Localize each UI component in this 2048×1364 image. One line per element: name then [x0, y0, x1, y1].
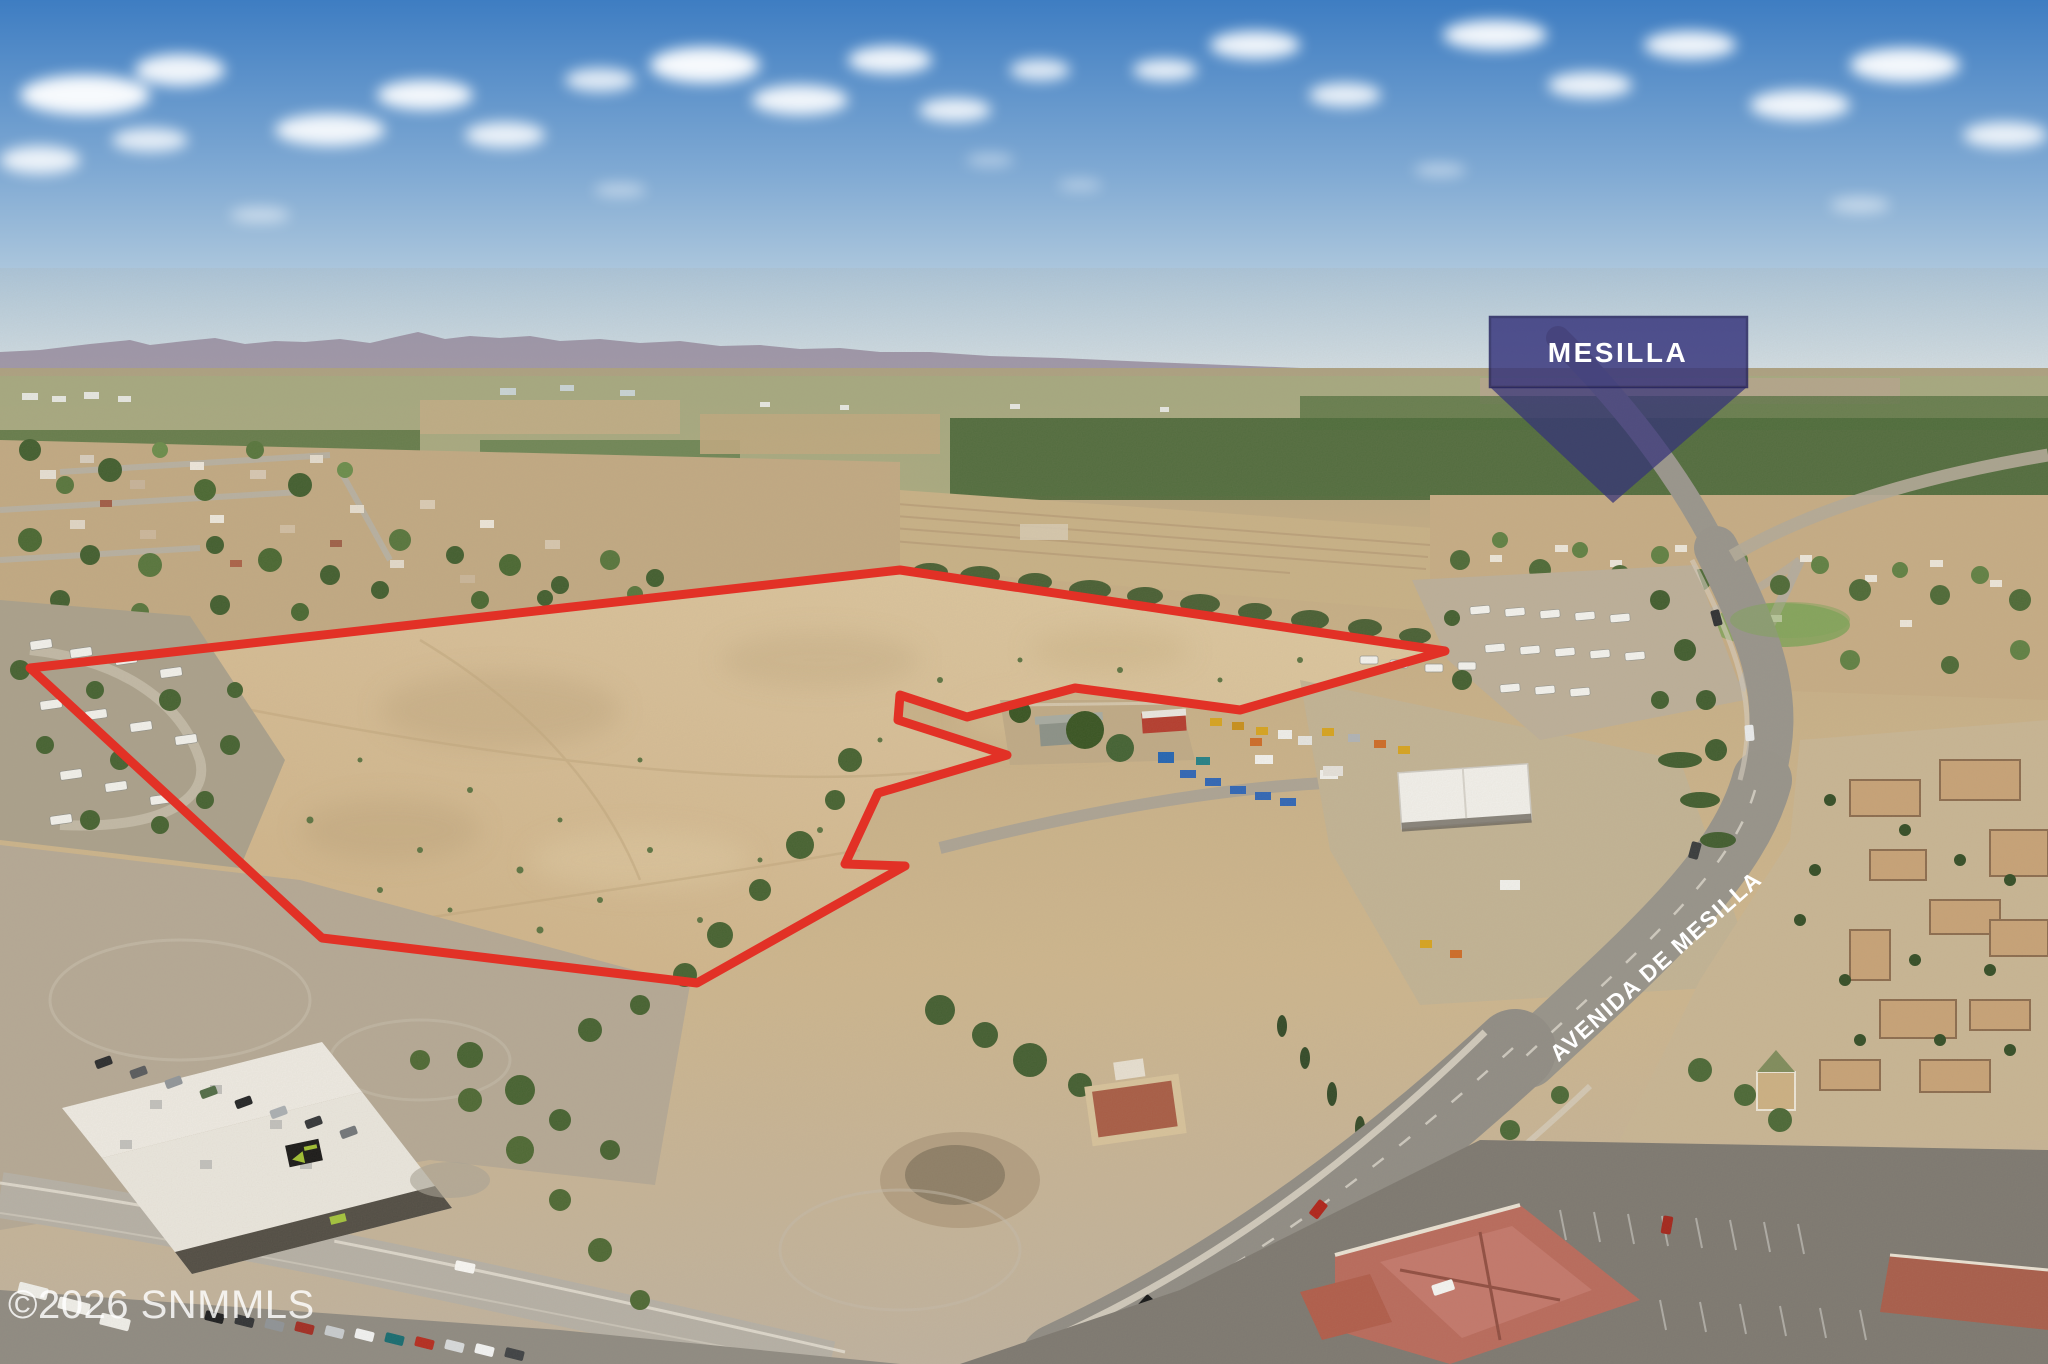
aerial-photo: MESILLA AVENIDA DE MESILLA ©2026 SNMMLS — [0, 0, 2048, 1364]
watermark: ©2026 SNMMLS — [8, 1283, 315, 1327]
grain-overlay — [0, 368, 2048, 1364]
aerial-photo-stage: MESILLA AVENIDA DE MESILLA ©2026 SNMMLS — [0, 0, 2048, 1364]
callout-label: MESILLA — [1548, 337, 1688, 368]
